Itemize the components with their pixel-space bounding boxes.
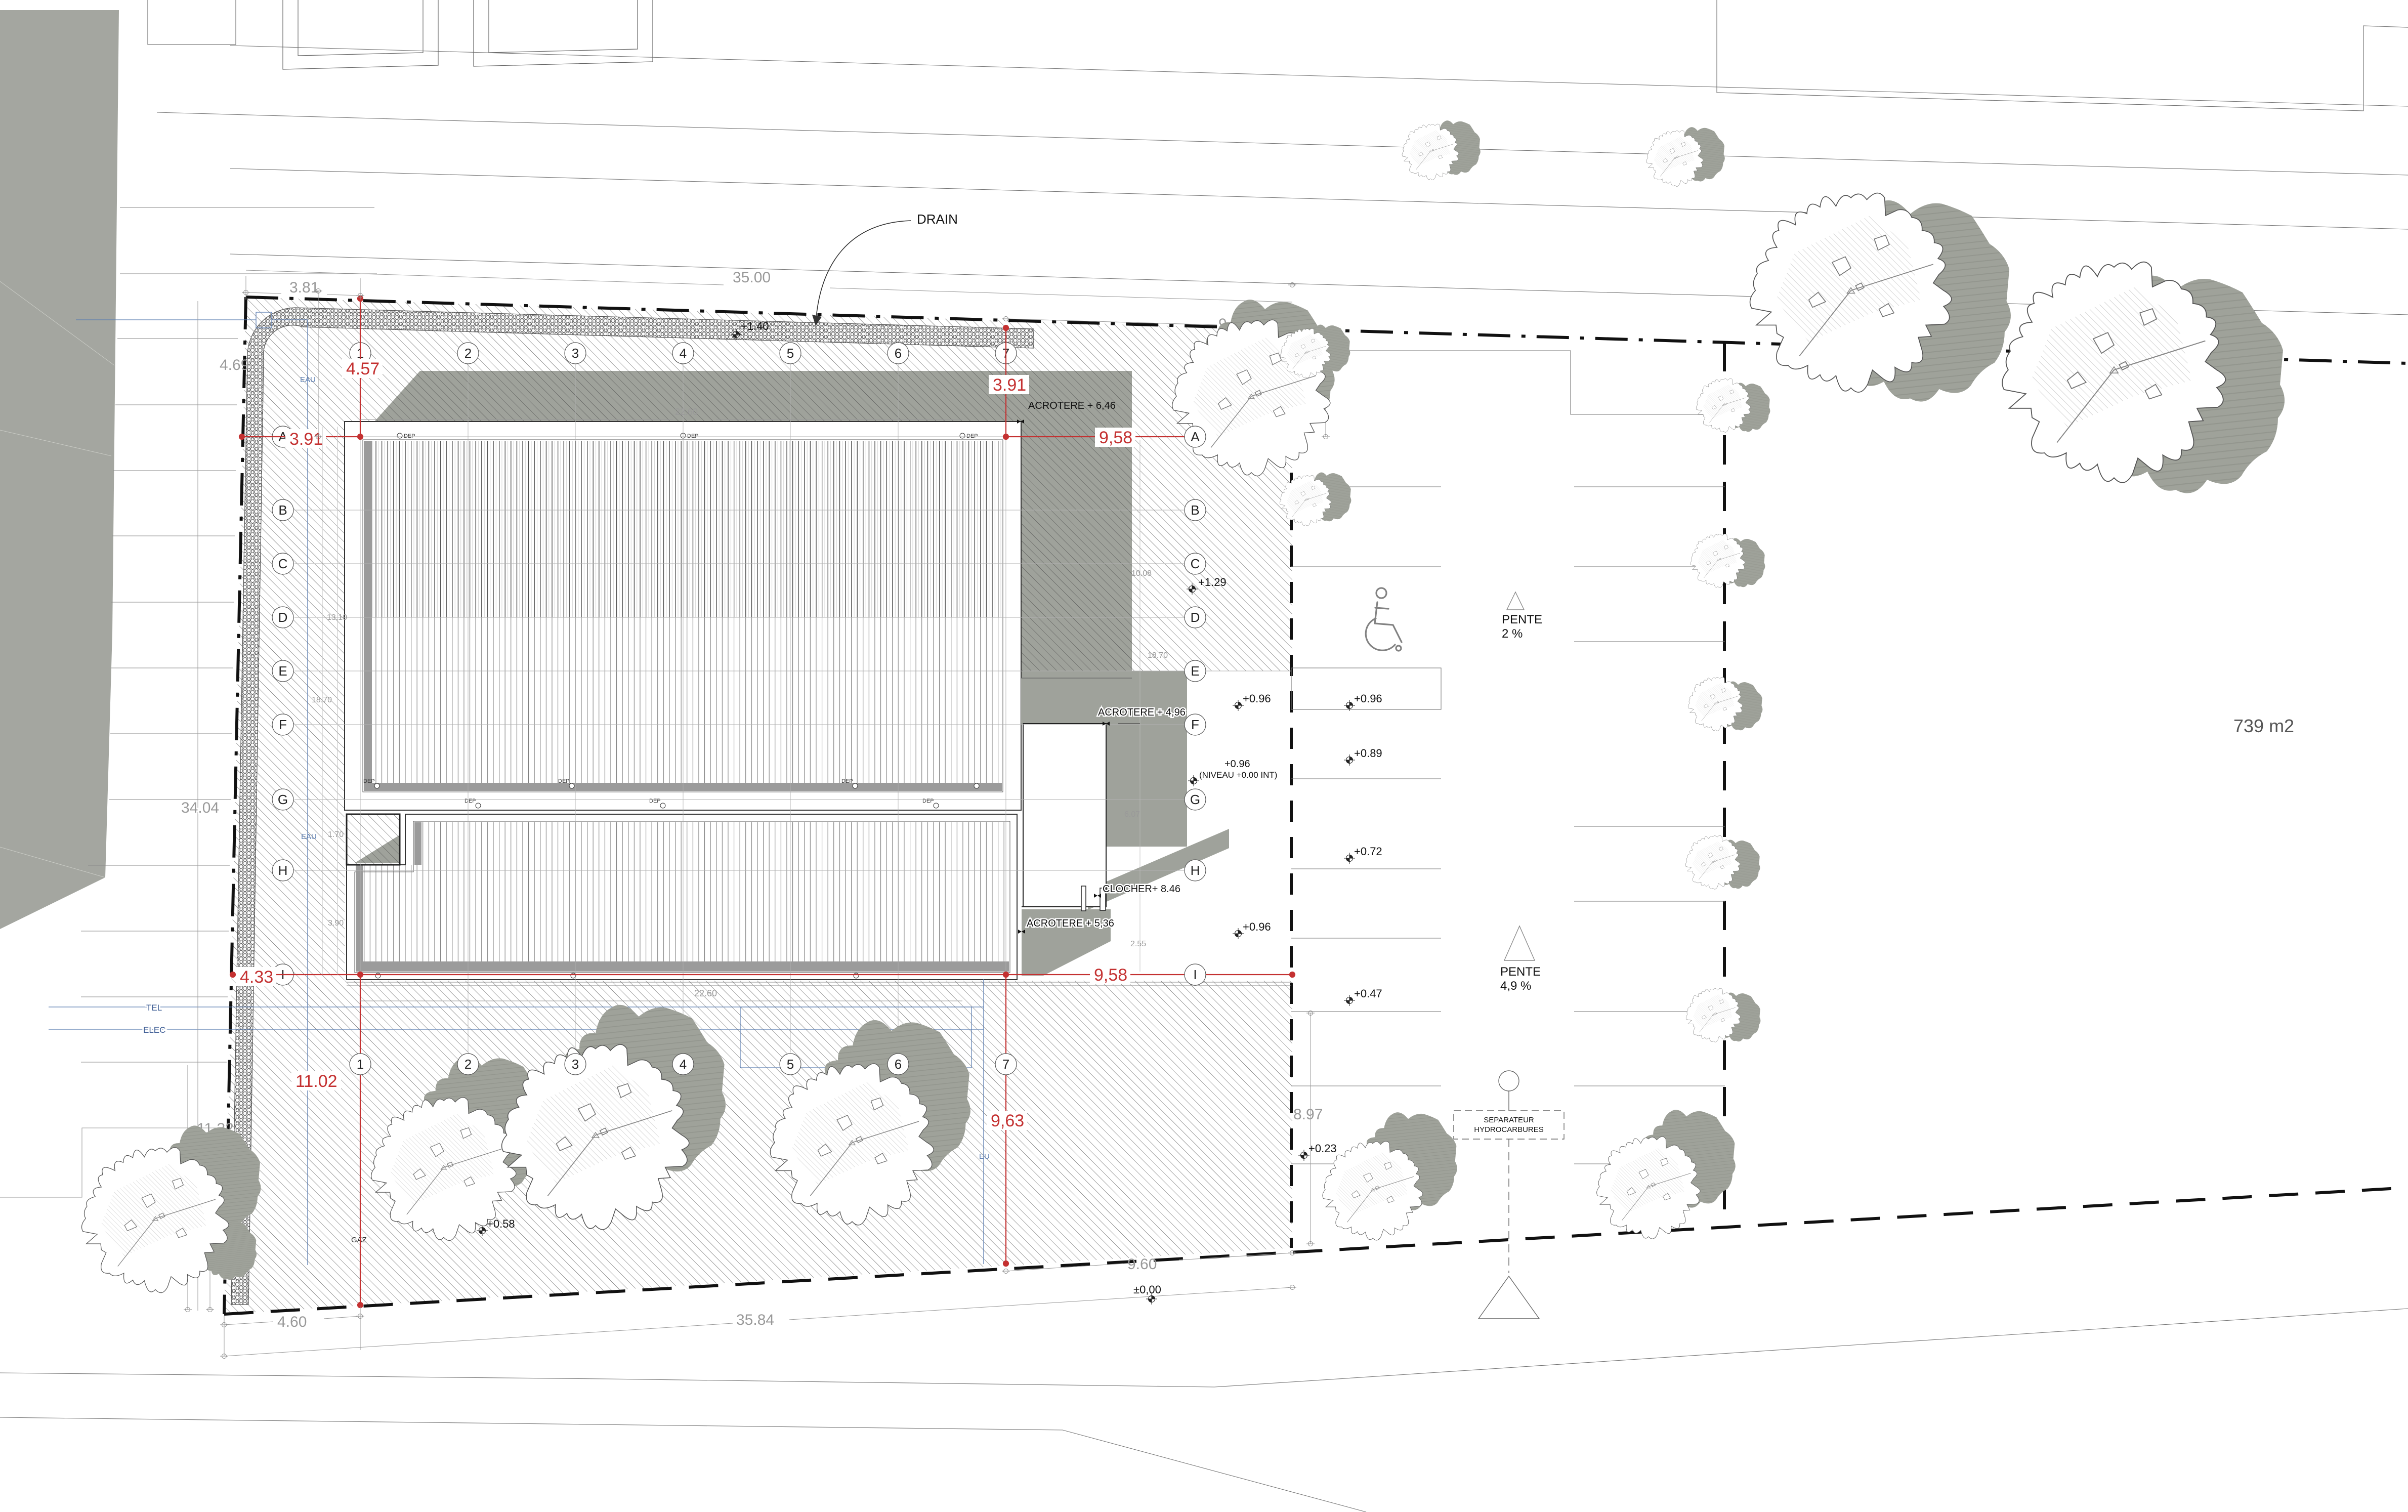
svg-text:I: I bbox=[1193, 967, 1197, 982]
svg-text:8.97: 8.97 bbox=[1293, 1106, 1323, 1123]
svg-text:CLOCHER+ 8.46: CLOCHER+ 8.46 bbox=[1103, 884, 1180, 895]
svg-text:4,9 %: 4,9 % bbox=[1500, 979, 1531, 993]
svg-text:2 %: 2 % bbox=[1502, 627, 1523, 641]
svg-text:3.91: 3.91 bbox=[993, 375, 1026, 395]
svg-text:G: G bbox=[278, 792, 288, 807]
svg-text:4.60: 4.60 bbox=[277, 1314, 307, 1330]
svg-text:11.02: 11.02 bbox=[295, 1072, 337, 1091]
svg-text:ACROTERE + 6,46: ACROTERE + 6,46 bbox=[1028, 400, 1116, 411]
svg-text:6.07: 6.07 bbox=[1124, 810, 1140, 819]
svg-text:EAU: EAU bbox=[301, 832, 317, 841]
svg-text:+0.47: +0.47 bbox=[1354, 987, 1382, 1000]
svg-text:H: H bbox=[278, 863, 288, 878]
svg-text:F: F bbox=[1191, 717, 1199, 732]
svg-text:C: C bbox=[278, 556, 288, 571]
svg-text:G: G bbox=[1190, 792, 1200, 807]
svg-text:2: 2 bbox=[464, 1057, 472, 1072]
svg-text:4.57: 4.57 bbox=[346, 359, 379, 379]
svg-text:TEL: TEL bbox=[146, 1003, 162, 1013]
svg-text:DEP: DEP bbox=[841, 778, 853, 784]
svg-text:ELEC: ELEC bbox=[143, 1025, 165, 1035]
svg-text:H: H bbox=[1191, 863, 1200, 878]
svg-text:4: 4 bbox=[680, 1057, 687, 1072]
svg-text:GAZ: GAZ bbox=[351, 1236, 367, 1244]
svg-text:9,63: 9,63 bbox=[991, 1111, 1024, 1130]
svg-text:SEPARATEUR: SEPARATEUR bbox=[1484, 1116, 1534, 1124]
svg-text:+0.72: +0.72 bbox=[1354, 845, 1382, 858]
svg-text:DEP: DEP bbox=[687, 433, 699, 439]
svg-text:739 m2: 739 m2 bbox=[2233, 716, 2294, 736]
svg-text:E: E bbox=[1191, 663, 1199, 679]
svg-text:5: 5 bbox=[787, 346, 794, 361]
svg-text:18.70: 18.70 bbox=[1148, 651, 1168, 660]
svg-text:3: 3 bbox=[572, 346, 579, 361]
svg-text:+0.89: +0.89 bbox=[1354, 747, 1382, 760]
svg-text:A: A bbox=[1191, 429, 1200, 444]
svg-text:+0.96: +0.96 bbox=[1243, 920, 1271, 933]
svg-text:3.90: 3.90 bbox=[328, 919, 344, 928]
svg-text:4: 4 bbox=[680, 346, 687, 361]
svg-text:F: F bbox=[279, 717, 287, 732]
svg-text:3: 3 bbox=[572, 1057, 579, 1072]
svg-text:DEP: DEP bbox=[558, 778, 570, 784]
svg-text:PENTE: PENTE bbox=[1500, 965, 1541, 979]
svg-text:PENTE: PENTE bbox=[1502, 613, 1542, 626]
svg-text:C: C bbox=[1191, 556, 1200, 571]
svg-text:+0.96: +0.96 bbox=[1243, 692, 1271, 705]
svg-text:DEP: DEP bbox=[464, 798, 476, 804]
svg-text:35.00: 35.00 bbox=[733, 269, 771, 286]
svg-text:3.81: 3.81 bbox=[289, 279, 319, 296]
svg-text:7: 7 bbox=[1002, 1057, 1009, 1072]
svg-text:4.69: 4.69 bbox=[220, 357, 249, 373]
svg-text:6: 6 bbox=[895, 346, 902, 361]
svg-text:HYDROCARBURES: HYDROCARBURES bbox=[1474, 1125, 1544, 1134]
svg-text:DEP: DEP bbox=[404, 433, 415, 439]
svg-text:(NIVEAU +0.00 INT): (NIVEAU +0.00 INT) bbox=[1199, 770, 1277, 780]
svg-text:+0.23: +0.23 bbox=[1308, 1142, 1337, 1155]
svg-text:5: 5 bbox=[787, 1057, 794, 1072]
svg-text:35.84: 35.84 bbox=[736, 1312, 774, 1328]
svg-text:10.08: 10.08 bbox=[1131, 569, 1152, 578]
svg-text:D: D bbox=[1191, 610, 1200, 625]
svg-text:B: B bbox=[278, 502, 287, 518]
svg-text:22.60: 22.60 bbox=[694, 988, 717, 998]
svg-text:1: 1 bbox=[357, 1057, 364, 1072]
svg-text:E: E bbox=[278, 663, 287, 679]
svg-text:18.70: 18.70 bbox=[312, 696, 332, 704]
svg-text:6: 6 bbox=[895, 1057, 902, 1072]
svg-text:4.33: 4.33 bbox=[240, 968, 273, 987]
svg-text:9,58: 9,58 bbox=[1094, 965, 1127, 985]
svg-text:3.91: 3.91 bbox=[289, 430, 323, 449]
svg-text:B: B bbox=[1191, 502, 1199, 518]
svg-text:+0.96: +0.96 bbox=[1354, 692, 1382, 705]
svg-text:9,58: 9,58 bbox=[1099, 428, 1132, 447]
svg-text:±0,00: ±0,00 bbox=[1133, 1283, 1161, 1296]
svg-text:22.60: 22.60 bbox=[675, 407, 698, 417]
svg-text:EAU: EAU bbox=[300, 375, 316, 384]
svg-text:DEP: DEP bbox=[363, 778, 375, 784]
svg-text:D: D bbox=[278, 610, 288, 625]
svg-text:2.55: 2.55 bbox=[1130, 940, 1146, 948]
svg-text:9.60: 9.60 bbox=[1127, 1256, 1157, 1273]
svg-text:13.10: 13.10 bbox=[327, 613, 347, 622]
svg-text:+1.29: +1.29 bbox=[1198, 576, 1227, 589]
svg-text:2: 2 bbox=[464, 346, 472, 361]
svg-text:EU: EU bbox=[979, 1152, 990, 1161]
svg-text:+0.96: +0.96 bbox=[1224, 759, 1250, 770]
svg-text:1.70: 1.70 bbox=[328, 830, 344, 839]
svg-text:+1.40: +1.40 bbox=[741, 320, 769, 332]
svg-text:34.04: 34.04 bbox=[181, 800, 219, 816]
svg-text:DEP: DEP bbox=[966, 433, 978, 439]
svg-text:ACROTERE + 4,96: ACROTERE + 4,96 bbox=[1098, 707, 1186, 718]
svg-text:DRAIN: DRAIN bbox=[917, 212, 958, 227]
svg-text:DEP: DEP bbox=[649, 798, 661, 804]
svg-text:ACROTERE + 5,36: ACROTERE + 5,36 bbox=[1027, 918, 1114, 929]
svg-text:DEP: DEP bbox=[922, 798, 934, 804]
